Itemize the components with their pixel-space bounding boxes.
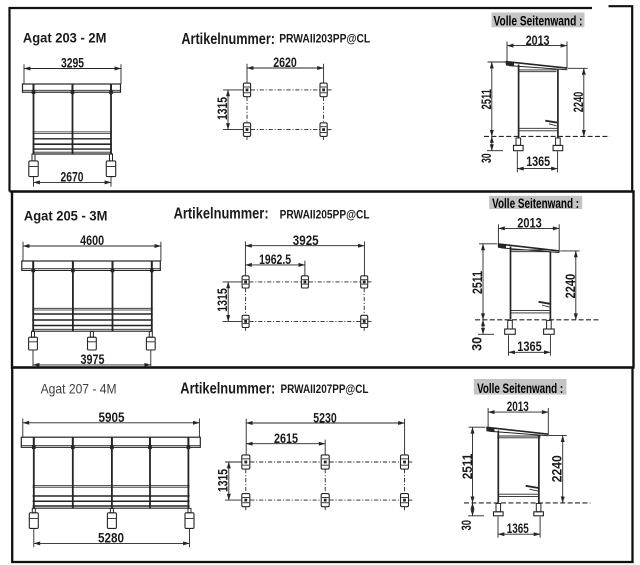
svg-text:1365: 1365: [507, 521, 529, 536]
svg-text:Volle Seitenwand :: Volle Seitenwand :: [492, 196, 579, 211]
svg-text:Artikelnummer:: Artikelnummer:: [174, 206, 269, 223]
svg-text:Artikelnummer:: Artikelnummer:: [180, 380, 275, 397]
svg-text:PRWAII207PP@CL: PRWAII207PP@CL: [281, 382, 369, 396]
svg-text:Volle Seitenwand :: Volle Seitenwand :: [494, 13, 583, 29]
svg-text:Agat 207 - 4M: Agat 207 - 4M: [41, 381, 117, 397]
svg-text:1315: 1315: [215, 469, 230, 492]
svg-text:PRWAII205PP@CL: PRWAII205PP@CL: [280, 207, 370, 221]
svg-text:Agat 205 - 3M: Agat 205 - 3M: [24, 208, 108, 224]
svg-text:1315: 1315: [215, 288, 230, 312]
svg-text:30: 30: [469, 337, 484, 351]
svg-text:Volle Seitenwand :: Volle Seitenwand :: [477, 381, 563, 396]
svg-text:Artikelnummer:: Artikelnummer:: [181, 31, 275, 48]
svg-text:Agat 203 - 2M: Agat 203 - 2M: [23, 30, 107, 46]
svg-text:1365: 1365: [526, 154, 550, 169]
svg-text:30: 30: [479, 153, 494, 163]
svg-text:PRWAII203PP@CL: PRWAII203PP@CL: [279, 31, 370, 45]
svg-text:30: 30: [459, 520, 474, 531]
